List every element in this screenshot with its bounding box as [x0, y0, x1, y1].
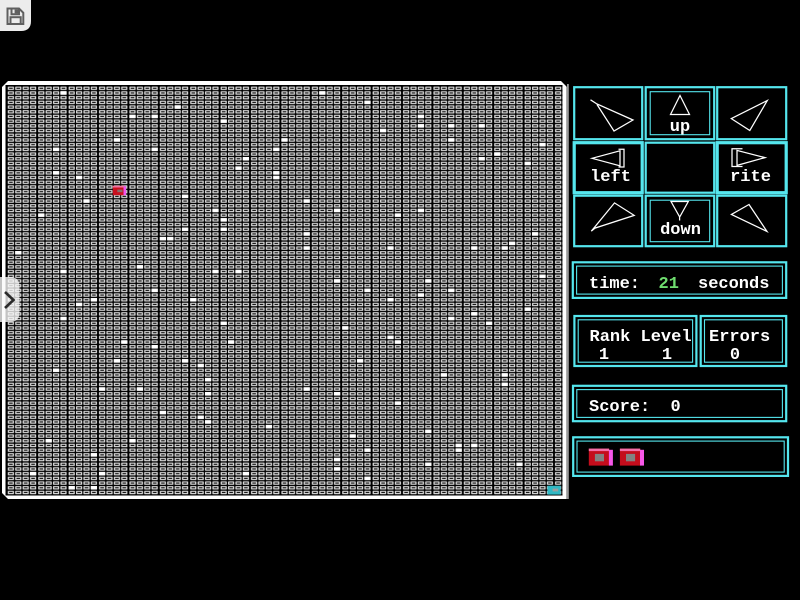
svg-text:1: 1 — [662, 346, 672, 365]
svg-text:1: 1 — [599, 346, 609, 365]
svg-text:Errors: Errors — [709, 328, 770, 347]
svg-text:Rank Level: Rank Level — [590, 328, 692, 347]
svg-text:seconds: seconds — [698, 275, 769, 294]
svg-text:Score:: Score: — [589, 398, 650, 417]
svg-text:up: up — [670, 118, 690, 137]
svg-text:time:: time: — [589, 275, 640, 294]
svg-text:rite: rite — [730, 168, 771, 187]
svg-text:left: left — [590, 168, 631, 187]
svg-text:0: 0 — [671, 398, 681, 417]
svg-text:21: 21 — [659, 275, 679, 294]
svg-text:0: 0 — [730, 346, 740, 365]
svg-text:down: down — [660, 221, 701, 240]
